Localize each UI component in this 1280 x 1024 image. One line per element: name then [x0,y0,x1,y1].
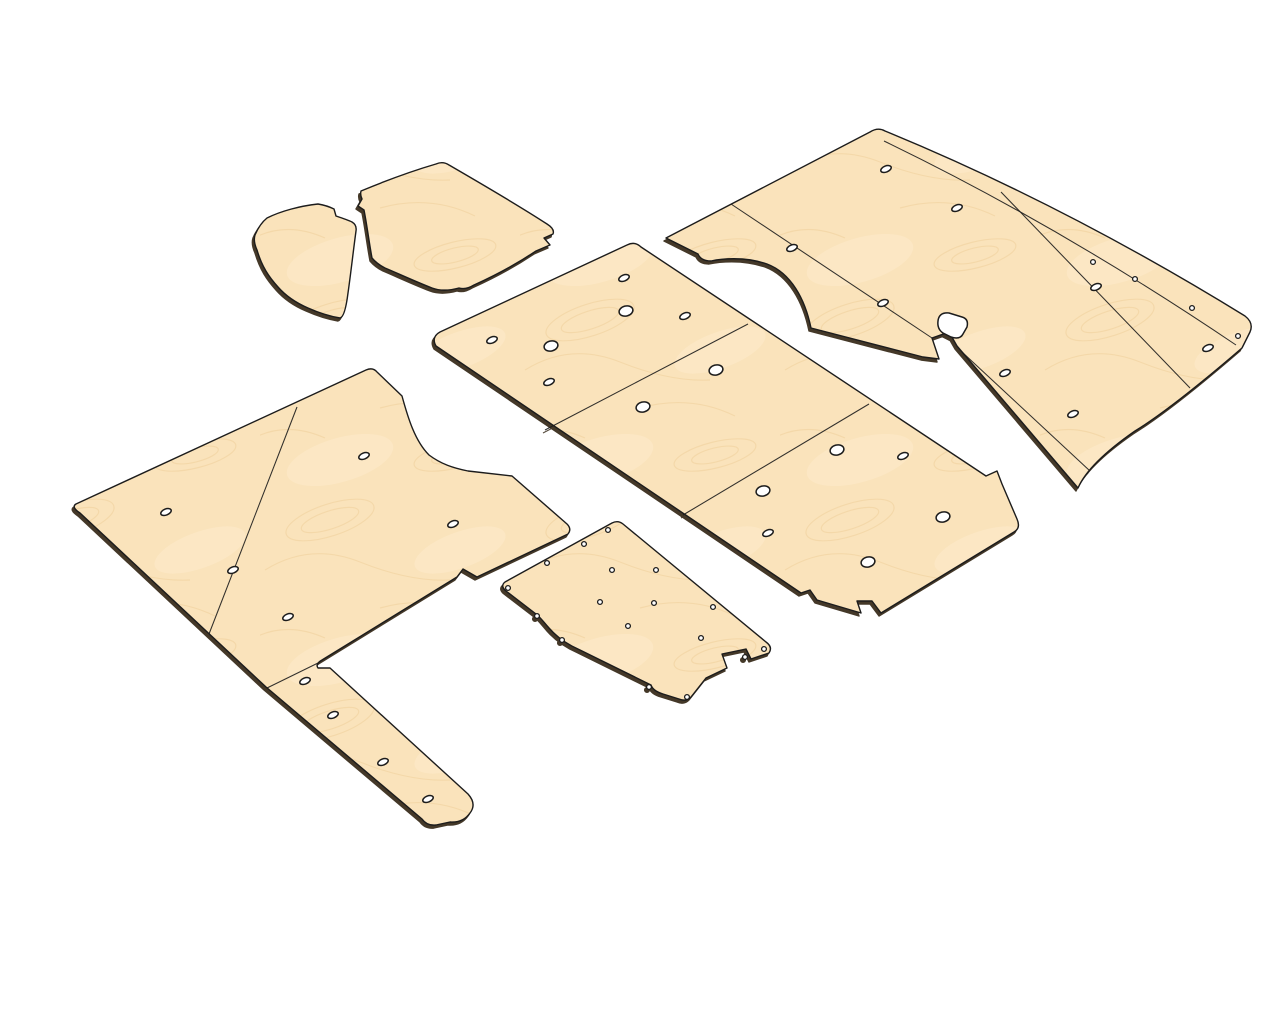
pilot-hole [535,614,540,619]
pilot-hole [699,636,704,641]
bulkhead-panel[interactable] [503,522,771,700]
pilot-hole [762,647,767,652]
cad-canvas[interactable] [0,0,1280,1024]
pilot-hole [506,586,511,591]
left-wall-panel-group[interactable] [74,369,570,825]
cab-mat-left[interactable] [254,204,356,318]
pilot-hole [1190,306,1195,311]
pilot-hole [685,695,690,700]
pilot-hole [652,601,657,606]
pilot-hole [610,568,615,573]
pilot-hole [1091,260,1096,265]
pilot-hole [743,655,748,660]
pilot-hole [711,605,716,610]
pilot-hole [598,600,603,605]
pilot-hole [1133,277,1138,282]
cab-mat-left-outline[interactable] [254,204,356,318]
bulkhead-panel-outline[interactable] [503,522,771,700]
pilot-hole [647,685,652,690]
pilot-hole [545,561,550,566]
pilot-hole [582,542,587,547]
cad-viewport[interactable] [0,0,1280,1024]
cab-mat-right[interactable] [358,163,553,291]
cab-mat-right-outline[interactable] [358,163,553,291]
panels-root [74,129,1251,825]
left-wall-panel-group-outline[interactable] [74,369,570,825]
pilot-hole [606,528,611,533]
pilot-hole [560,638,565,643]
pilot-hole [654,568,659,573]
pilot-hole [1236,334,1241,339]
pilot-hole [626,624,631,629]
